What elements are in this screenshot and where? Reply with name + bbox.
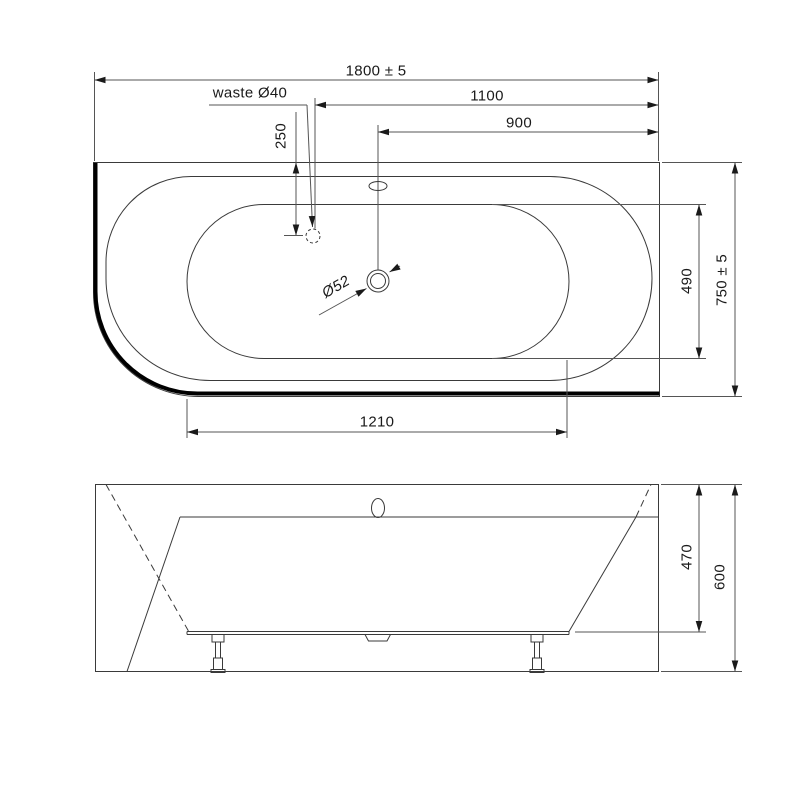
dim-overall-height-label: 600 (713, 564, 728, 590)
bathtub-front-view (96, 485, 743, 673)
hidden-edge-right (636, 485, 651, 518)
drawing-canvas: 1800 ± 5 1100 900 waste Ø40 250 Ø52 490 … (0, 0, 800, 800)
drain-hole-inner (371, 274, 386, 289)
overflow-front (372, 499, 385, 518)
technical-drawing-svg (0, 0, 800, 800)
dim-overall-depth-label: 750 ± 5 (715, 254, 730, 306)
waste-hole (306, 229, 320, 243)
basin-left-slant (127, 517, 180, 672)
dim-drain-offset-label: 900 (506, 116, 532, 131)
waste-label: waste Ø40 (213, 86, 287, 101)
panel-outline (96, 485, 659, 672)
dim-inner-depth-label: 470 (680, 544, 695, 570)
drain-leader-line-2 (390, 266, 401, 272)
dim-basin-length-label: 1210 (360, 415, 395, 430)
hidden-edge-left (106, 485, 189, 633)
drain-recess (365, 635, 391, 642)
dim-overall-width-label: 1800 ± 5 (346, 64, 407, 79)
foot-left (211, 635, 225, 673)
dim-basin-width-label: 490 (680, 268, 695, 294)
waste-leader-line (307, 105, 313, 227)
foot-right (530, 635, 544, 673)
dim-waste-offset-label: 1100 (470, 89, 503, 104)
dim-waste-depth-label: 250 (274, 123, 289, 149)
basin-right-slant (569, 517, 636, 632)
bathtub-top-view (94, 72, 743, 438)
basin-bottom-line (187, 632, 569, 635)
